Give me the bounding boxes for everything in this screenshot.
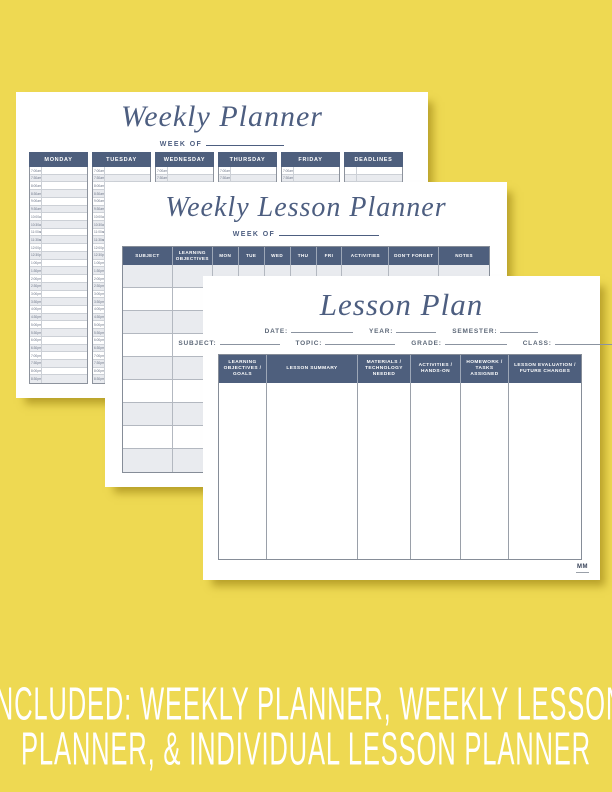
writing-cell (357, 167, 402, 174)
column-header: TUE (239, 247, 265, 265)
day-column-header: DEADLINES (344, 152, 403, 167)
table-header-row: SUBJECTLEARNING OBJECTIVESMONTUEWEDTHUFR… (123, 247, 489, 265)
time-row: 11:00am (30, 229, 87, 237)
time-label: 4:00pm (30, 306, 42, 313)
time-label: 8:30am (30, 190, 42, 197)
time-label: 12:30pm (30, 252, 42, 259)
column-header: WED (265, 247, 291, 265)
column-header: HOMEWORK / TASKS ASSIGNED (461, 355, 509, 383)
field-label: SUBJECT: (178, 340, 216, 347)
writing-cell (168, 167, 213, 174)
column-header: DON'T FORGET (389, 247, 439, 265)
time-row: 8:30pm (30, 375, 87, 383)
time-row: 10:00am (30, 213, 87, 221)
time-row: 7:00am (282, 167, 339, 175)
caption-line-1: INCLUDED: WEEKLY PLANNER, WEEKLY LESSON (0, 682, 612, 727)
table-cell (123, 311, 173, 333)
time-label: 5:30pm (30, 329, 42, 336)
table-cell (123, 288, 173, 310)
time-label: 2:00pm (93, 275, 105, 282)
time-row: 5:00pm (30, 321, 87, 329)
time-row: 12:30pm (30, 252, 87, 260)
form-field: SUBJECT: (178, 340, 279, 347)
caption-line-2: PLANNER, & INDIVIDUAL LESSON PLANNER (0, 727, 612, 772)
time-label: 4:30pm (30, 314, 42, 321)
field-label: GRADE: (411, 340, 441, 347)
writing-cell (42, 229, 87, 236)
caption: INCLUDED: WEEKLY PLANNER, WEEKLY LESSON … (0, 682, 612, 772)
table-cell (123, 380, 173, 402)
time-label: 7:00am (219, 167, 231, 174)
day-column-body: 7:00am7:30am8:00am8:30am9:00am9:30am10:0… (29, 167, 88, 384)
time-label: 7:00pm (30, 352, 42, 359)
writing-cell (42, 175, 87, 182)
table-cell (358, 383, 411, 559)
time-label: 8:00am (93, 182, 105, 189)
column-header: LESSON EVALUATION / FUTURE CHANGES (509, 355, 581, 383)
table-header-row: LEARNING OBJECTIVES / GOALSLESSON SUMMAR… (219, 355, 581, 383)
lesson-plan-fields-row2: SUBJECT:TOPIC:GRADE:CLASS: (203, 340, 600, 347)
writing-cell (231, 175, 276, 182)
time-row: 7:30am (30, 175, 87, 183)
time-row: 4:00pm (30, 306, 87, 314)
time-row: 7:00am (93, 167, 150, 175)
time-row: 7:00pm (30, 352, 87, 360)
time-label: 8:30am (93, 190, 105, 197)
time-label: 7:30am (282, 175, 294, 182)
time-row: 9:30am (30, 206, 87, 214)
time-label: 9:30am (93, 206, 105, 213)
time-label: 4:30pm (93, 314, 105, 321)
writing-cell (42, 283, 87, 290)
writing-cell (42, 352, 87, 359)
writing-cell (357, 175, 402, 182)
writing-cell (105, 175, 150, 182)
writing-cell (42, 375, 87, 383)
time-row: 1:00pm (30, 260, 87, 268)
week-of-label: WEEK OF (160, 141, 202, 148)
time-label (345, 175, 357, 182)
writing-cell (168, 175, 213, 182)
column-header: FRI (317, 247, 343, 265)
column-header: LEARNING OBJECTIVES (173, 247, 213, 265)
time-row: 9:00am (30, 198, 87, 206)
time-label: 8:30pm (93, 375, 105, 383)
time-label: 8:30pm (30, 375, 42, 383)
time-label: 12:00pm (30, 244, 42, 251)
form-field: GRADE: (411, 340, 506, 347)
logo-tagline-mark (576, 572, 589, 574)
writing-cell (42, 198, 87, 205)
time-label: 10:30am (93, 221, 105, 228)
field-underline (396, 328, 436, 333)
time-label: 9:30am (30, 206, 42, 213)
time-label: 11:00am (30, 229, 42, 236)
time-label: 3:00pm (30, 291, 42, 298)
writing-cell (42, 337, 87, 344)
form-field: YEAR: (369, 328, 436, 335)
field-label: DATE: (265, 328, 288, 335)
time-label: 7:00am (30, 167, 42, 174)
lesson-plan-fields-row1: DATE:YEAR:SEMESTER: (203, 328, 600, 335)
form-field: CLASS: (523, 340, 612, 347)
time-row: 3:30pm (30, 298, 87, 306)
writing-cell (42, 182, 87, 189)
time-label: 4:00pm (93, 306, 105, 313)
writing-cell (42, 291, 87, 298)
time-label: 3:30pm (93, 298, 105, 305)
writing-cell (42, 167, 87, 174)
time-label: 5:00pm (93, 321, 105, 328)
writing-cell (42, 206, 87, 213)
table-cell (219, 383, 267, 559)
writing-cell (42, 244, 87, 251)
writing-cell (42, 329, 87, 336)
field-underline (500, 328, 538, 333)
logo-monogram: MM (576, 565, 589, 570)
day-column-header: WEDNESDAY (155, 152, 214, 167)
lesson-plan-title: Lesson Plan (203, 287, 600, 323)
writing-cell (42, 321, 87, 328)
writing-cell (42, 314, 87, 321)
time-label: 6:00pm (30, 337, 42, 344)
day-column-header: TUESDAY (92, 152, 151, 167)
table-body-row (219, 383, 581, 559)
column-header: LEARNING OBJECTIVES / GOALS (219, 355, 267, 383)
field-underline (325, 340, 395, 345)
column-header: SUBJECT (123, 247, 173, 265)
time-row: 3:00pm (30, 291, 87, 299)
time-row: 7:00am (30, 167, 87, 175)
writing-cell (105, 167, 150, 174)
writing-cell (42, 236, 87, 243)
table-cell (509, 383, 581, 559)
writing-cell (42, 221, 87, 228)
time-label: 1:00pm (30, 260, 42, 267)
time-label: 5:00pm (30, 321, 42, 328)
time-label: 2:00pm (30, 275, 42, 282)
field-label: YEAR: (369, 328, 393, 335)
writing-cell (42, 252, 87, 259)
table-cell (411, 383, 461, 559)
time-row: 8:00pm (30, 368, 87, 376)
time-row: 7:00am (156, 167, 213, 175)
table-cell (123, 357, 173, 379)
weekly-lesson-planner-title: Weekly Lesson Planner (105, 192, 507, 224)
time-row: 2:00pm (30, 275, 87, 283)
form-field: TOPIC: (296, 340, 396, 347)
week-of-line: WEEK OF (16, 140, 428, 148)
time-label: 7:00am (93, 167, 105, 174)
column-header: MON (213, 247, 239, 265)
time-label: 9:00am (30, 198, 42, 205)
time-label: 7:30am (30, 175, 42, 182)
table-cell (123, 449, 173, 472)
table-cell (123, 265, 173, 287)
time-row: 6:30pm (30, 345, 87, 353)
time-label: 3:30pm (30, 298, 42, 305)
column-header: NOTES (439, 247, 489, 265)
time-label: 1:30pm (93, 267, 105, 274)
time-label: 6:00pm (93, 337, 105, 344)
time-label: 12:30pm (93, 252, 105, 259)
column-header: ACTIVITIES / HANDS-ON (411, 355, 461, 383)
time-row: 11:30am (30, 236, 87, 244)
time-row: 1:30pm (30, 267, 87, 275)
time-label: 7:30pm (93, 360, 105, 367)
writing-cell (42, 345, 87, 352)
time-row (345, 167, 402, 175)
time-label: 7:00am (156, 167, 168, 174)
table-cell (461, 383, 509, 559)
time-row: 12:00pm (30, 244, 87, 252)
writing-cell (294, 167, 339, 174)
weekly-planner-title: Weekly Planner (16, 100, 428, 134)
time-label: 2:30pm (30, 283, 42, 290)
time-label: 11:30am (93, 236, 105, 243)
field-underline (291, 328, 353, 333)
time-row: 8:00am (30, 182, 87, 190)
time-label: 5:30pm (93, 329, 105, 336)
time-label: 11:00am (93, 229, 105, 236)
column-header: LESSON SUMMARY (267, 355, 358, 383)
day-column: MONDAY7:00am7:30am8:00am8:30am9:00am9:30… (29, 152, 88, 384)
writing-cell (42, 306, 87, 313)
time-label (345, 167, 357, 174)
time-row: 10:30am (30, 221, 87, 229)
time-row: 4:30pm (30, 314, 87, 322)
time-label: 10:30am (30, 221, 42, 228)
day-column-header: MONDAY (29, 152, 88, 167)
time-label: 7:30pm (30, 360, 42, 367)
column-header: MATERIALS / TECHNOLOGY NEEDED (358, 355, 411, 383)
writing-cell (42, 298, 87, 305)
writing-cell (42, 360, 87, 367)
week-of-underline (279, 230, 379, 236)
time-label: 10:00am (93, 213, 105, 220)
field-underline (220, 340, 280, 345)
lesson-plan-table: LEARNING OBJECTIVES / GOALSLESSON SUMMAR… (218, 354, 582, 560)
day-column-header: THURSDAY (218, 152, 277, 167)
time-label: 9:00am (93, 198, 105, 205)
time-row: 7:00am (219, 167, 276, 175)
time-label: 7:30am (93, 175, 105, 182)
time-label: 6:30pm (93, 345, 105, 352)
time-row: 7:30pm (30, 360, 87, 368)
time-label: 12:00pm (93, 244, 105, 251)
time-label: 7:30am (219, 175, 231, 182)
time-label: 7:00pm (93, 352, 105, 359)
time-label: 1:00pm (93, 260, 105, 267)
week-of-line: WEEK OF (105, 230, 507, 238)
table-cell (267, 383, 358, 559)
time-row: 6:00pm (30, 337, 87, 345)
writing-cell (294, 175, 339, 182)
time-label: 7:30am (156, 175, 168, 182)
time-label: 6:30pm (30, 345, 42, 352)
field-label: CLASS: (523, 340, 552, 347)
form-field: DATE: (265, 328, 353, 335)
column-header: ACTIVITIES (342, 247, 389, 265)
writing-cell (42, 275, 87, 282)
publisher-logo: MM (576, 565, 589, 573)
field-underline (555, 340, 612, 345)
week-of-underline (206, 140, 284, 146)
time-row: 5:30pm (30, 329, 87, 337)
time-row: 2:30pm (30, 283, 87, 291)
field-underline (445, 340, 507, 345)
time-label: 1:30pm (30, 267, 42, 274)
time-row: 8:30am (30, 190, 87, 198)
time-label: 8:00pm (30, 368, 42, 375)
day-column-header: FRIDAY (281, 152, 340, 167)
lesson-plan-page: Lesson Plan DATE:YEAR:SEMESTER: SUBJECT:… (203, 276, 600, 580)
time-label: 2:30pm (93, 283, 105, 290)
time-label: 11:30am (30, 236, 42, 243)
column-header: THU (291, 247, 317, 265)
field-label: SEMESTER: (452, 328, 497, 335)
time-label: 10:00am (30, 213, 42, 220)
form-field: SEMESTER: (452, 328, 538, 335)
week-of-label: WEEK OF (233, 231, 275, 238)
time-label: 8:00am (30, 182, 42, 189)
writing-cell (42, 213, 87, 220)
table-cell (123, 403, 173, 425)
time-label: 7:00am (282, 167, 294, 174)
table-cell (123, 334, 173, 356)
writing-cell (231, 167, 276, 174)
writing-cell (42, 190, 87, 197)
writing-cell (42, 260, 87, 267)
field-label: TOPIC: (296, 340, 323, 347)
writing-cell (42, 267, 87, 274)
time-label: 8:00pm (93, 368, 105, 375)
time-label: 3:00pm (93, 291, 105, 298)
writing-cell (42, 368, 87, 375)
table-cell (123, 426, 173, 448)
